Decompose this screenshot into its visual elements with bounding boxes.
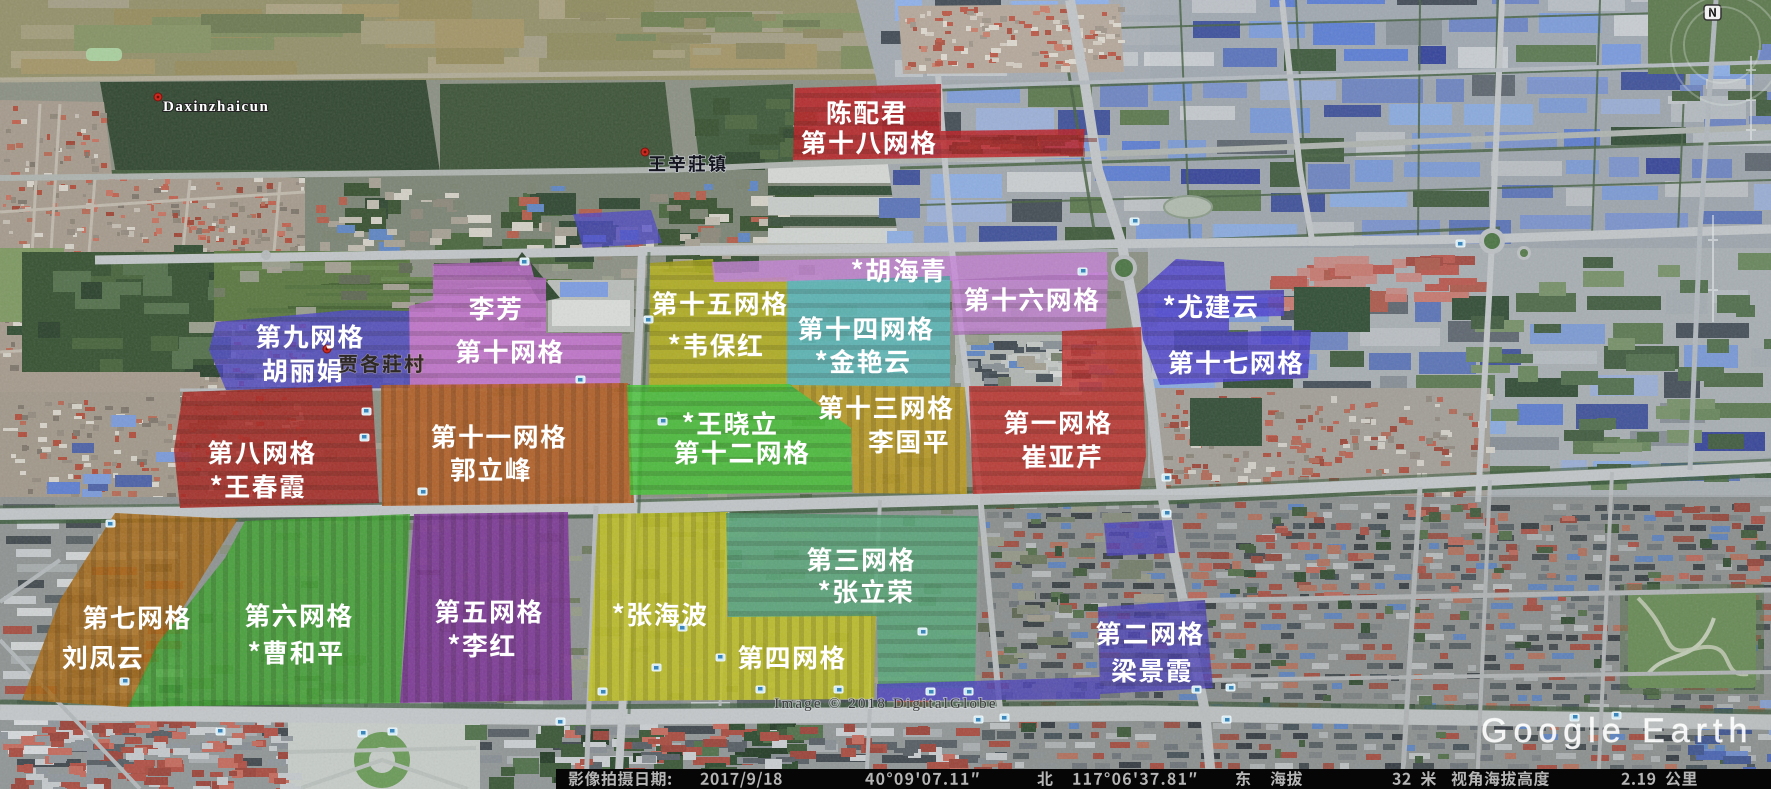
svg-text:Google Earth: Google Earth — [1481, 712, 1753, 750]
svg-text:Image © 2018 DigitalGlobe: Image © 2018 DigitalGlobe — [774, 696, 997, 712]
svg-text:Daxinzhaicun: Daxinzhaicun — [163, 99, 269, 115]
